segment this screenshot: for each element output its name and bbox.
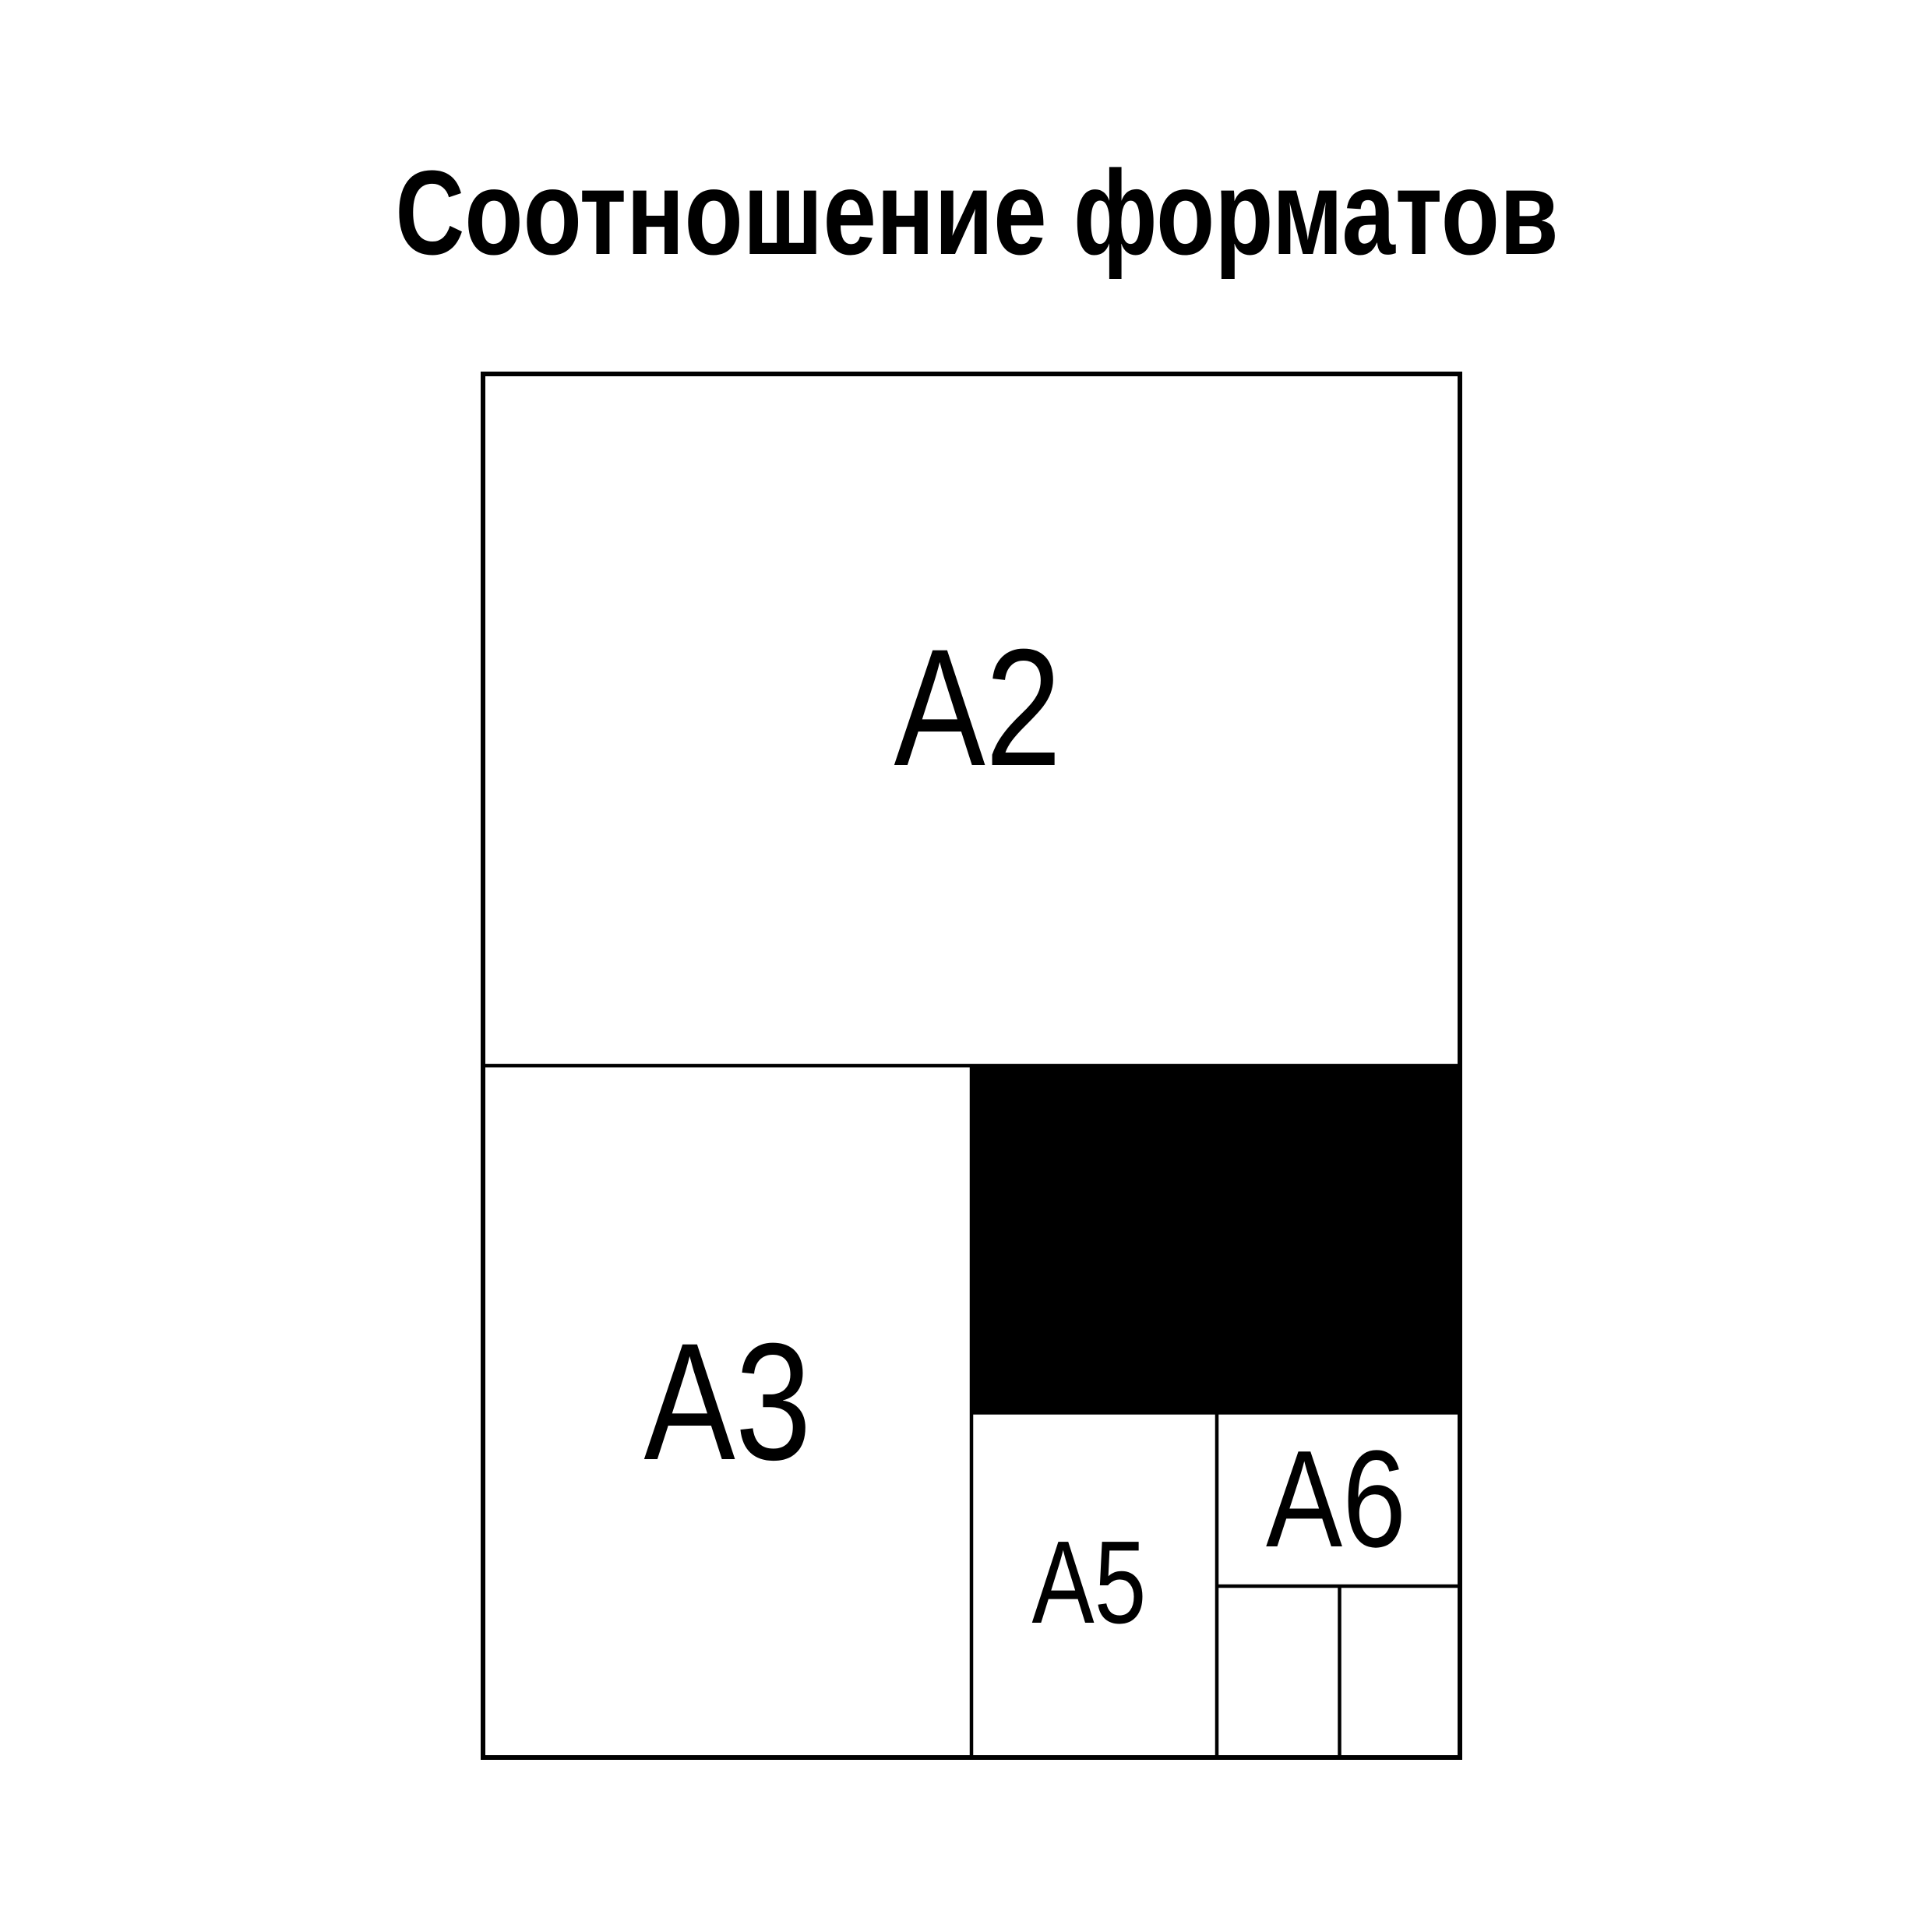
a3-label: A3 — [644, 1309, 812, 1495]
a4-label: A4 — [1141, 1137, 1309, 1324]
a5-label: A5 — [1032, 1516, 1147, 1648]
a6-label: A6 — [1266, 1422, 1406, 1576]
page-title: Соотношение форматов — [204, 153, 1750, 273]
format-diagram: A2 A3 A4 A5 A6 — [481, 372, 1462, 1760]
format-diagram-canvas: A2 A3 A4 A5 A6 — [481, 372, 1462, 1760]
infographic-page: Соотношение форматов A2 A3 A4 A5 A6 — [0, 0, 1932, 1932]
a2-label: A2 — [894, 615, 1062, 801]
